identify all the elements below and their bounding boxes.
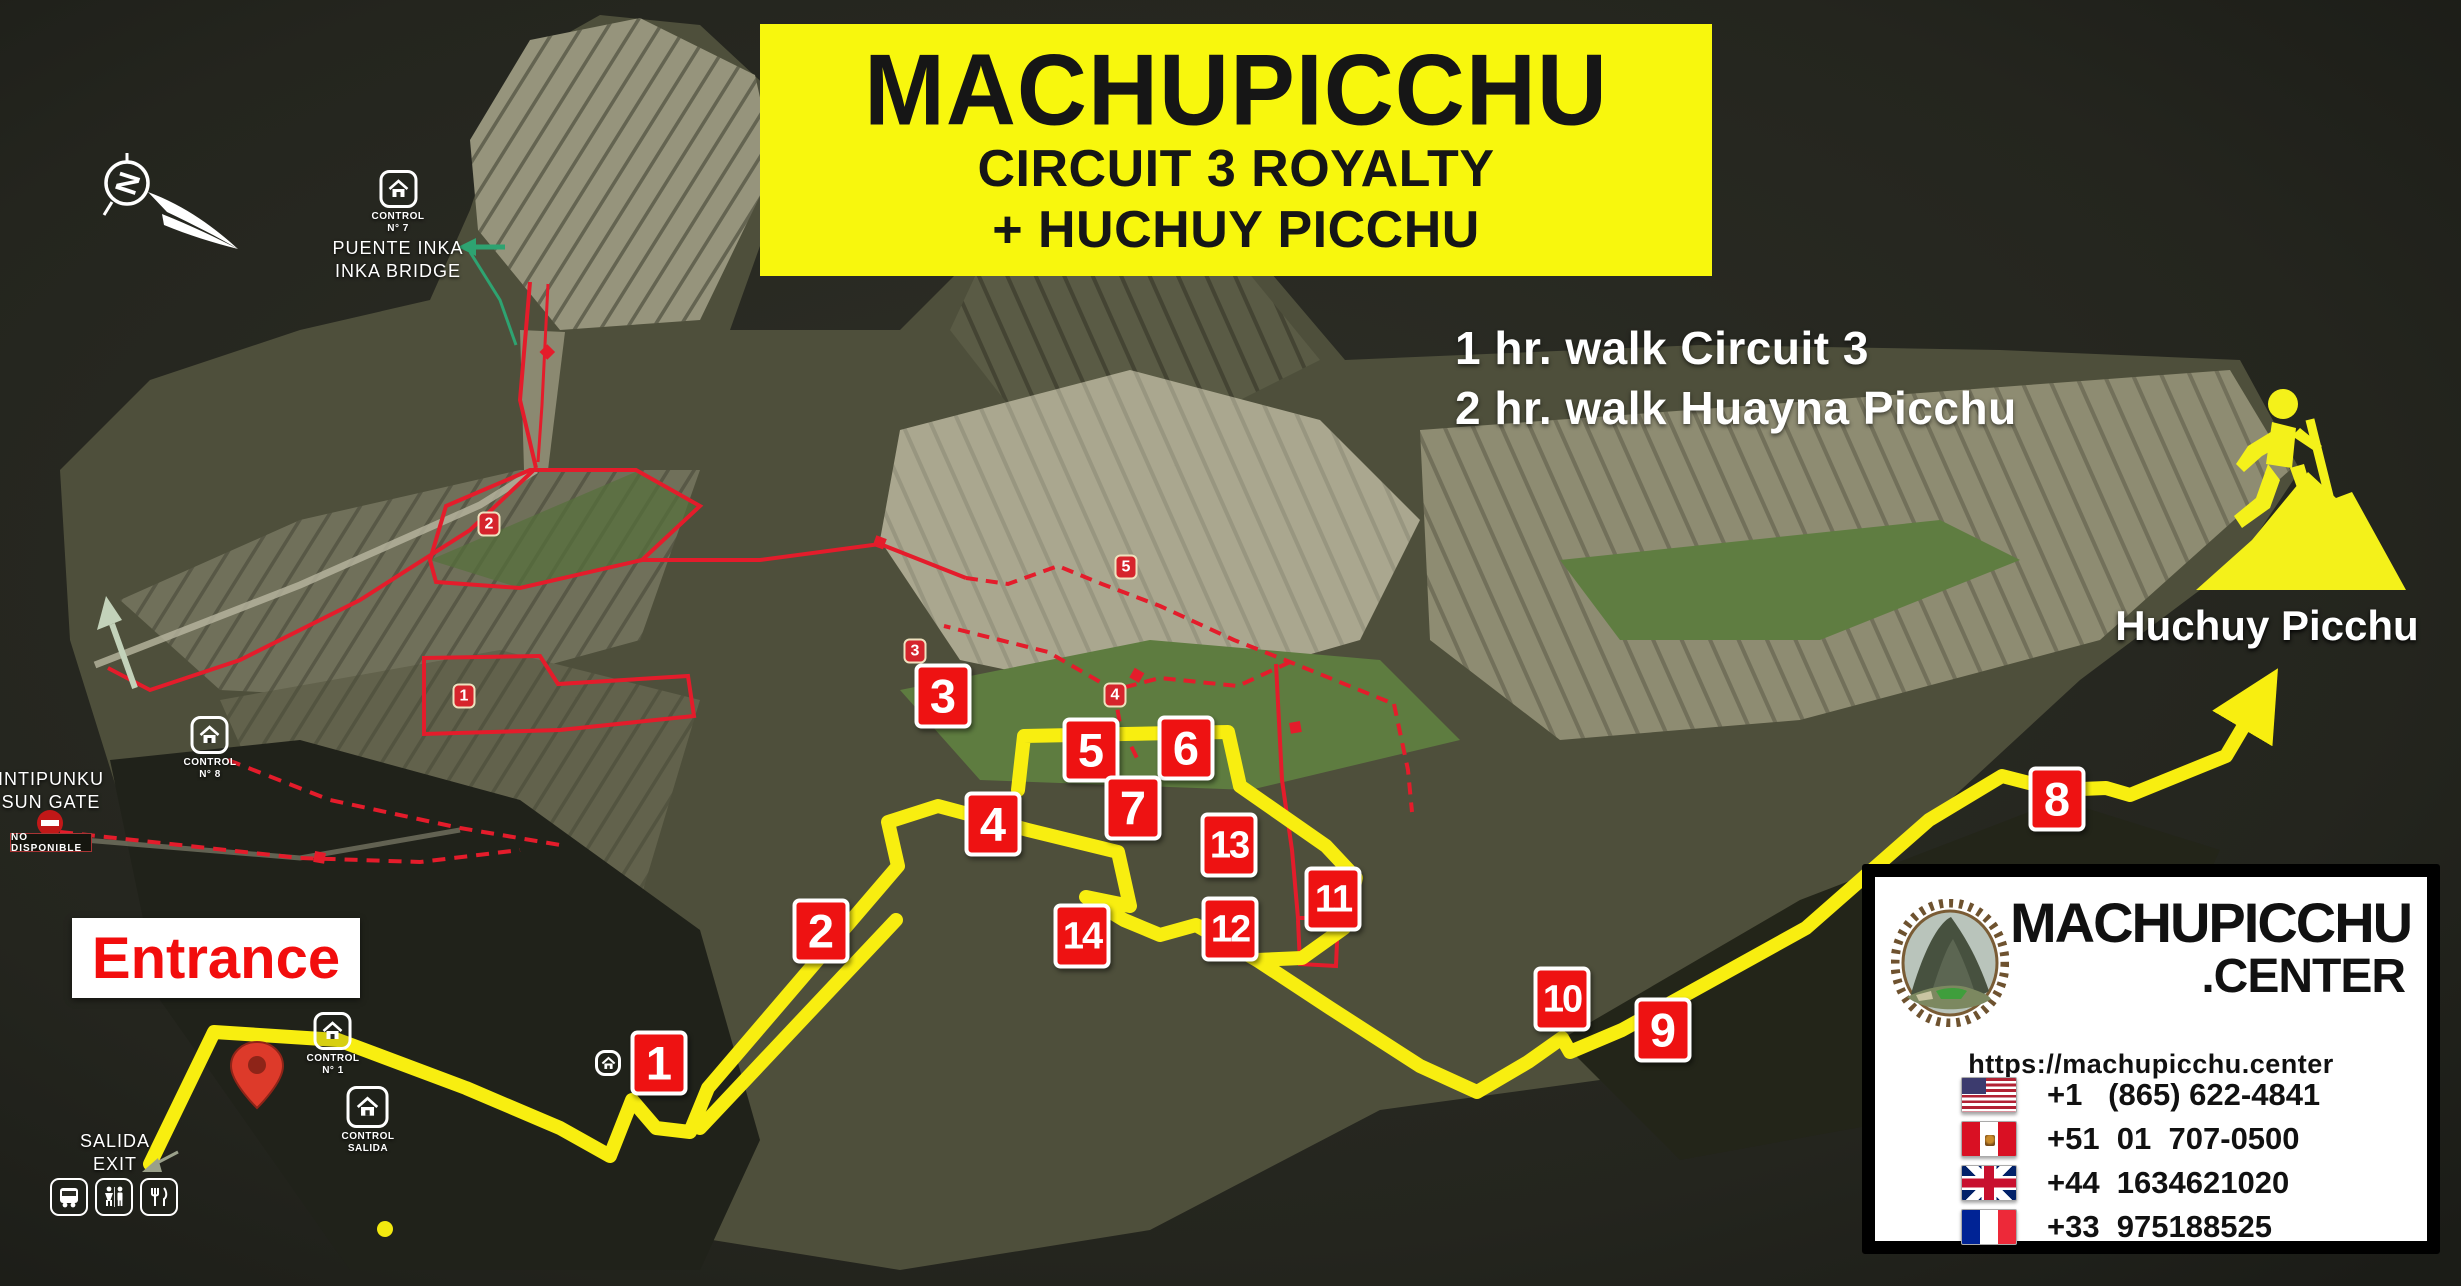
walk-duration-circuit3: 1 hr. walk Circuit 3 xyxy=(1455,318,2017,378)
entrance-label-box: Entrance xyxy=(72,918,360,998)
control-salida: CONTROL SALIDA xyxy=(342,1086,395,1154)
machu-picchu-circuit-map: N MACHUPICCHU CIRCUIT 3 ROYALTY + HUCHUY… xyxy=(0,0,2461,1286)
waypoint-4: 4 xyxy=(965,792,1022,857)
house-icon xyxy=(379,170,417,208)
green-arrows xyxy=(97,238,516,688)
phone-row-usa: +1 (865) 622-4841 xyxy=(1961,1073,2320,1117)
huchuy-picchu-label: Huchuy Picchu xyxy=(2115,602,2418,650)
phone-row-uk: +44 1634621020 xyxy=(1961,1161,2320,1205)
phone-number-usa: +1 (865) 622-4841 xyxy=(2047,1077,2320,1113)
map-subtitle-huchuy: + HUCHUY PICCHU xyxy=(760,201,1712,259)
walk-duration-huayna: 2 hr. walk Huayna Picchu xyxy=(1455,378,2017,438)
intipunku-line1: INTIPUNKU xyxy=(0,768,104,791)
waypoint-11: 11 xyxy=(1305,867,1362,932)
waypoint-1: 1 xyxy=(631,1031,688,1096)
waypoint-5: 5 xyxy=(1063,718,1120,783)
control-number: N° 8 xyxy=(199,769,221,781)
exit-line: EXIT xyxy=(80,1153,150,1176)
control-1: CONTROL N° 1 xyxy=(307,1012,360,1076)
france-flag-icon xyxy=(1961,1209,2017,1245)
control-number: SALIDA xyxy=(348,1143,388,1155)
waypoint-12: 12 xyxy=(1202,897,1259,962)
phone-number-france: +33 975188525 xyxy=(2047,1209,2272,1245)
waypoint-3: 3 xyxy=(915,664,972,729)
salida-line: SALIDA xyxy=(80,1130,150,1153)
circuit-marker-5: 5 xyxy=(1115,555,1138,580)
usa-flag-icon xyxy=(1961,1077,2017,1113)
waypoint-10: 10 xyxy=(1534,967,1591,1032)
waypoint-2: 2 xyxy=(793,899,850,964)
restaurant-icon xyxy=(140,1178,178,1216)
house-icon xyxy=(314,1012,352,1050)
control-7-puente-inka: CONTROL N° 7 PUENTE INKA INKA BRIDGE xyxy=(332,170,463,282)
map-title: MACHUPICCHU xyxy=(760,39,1712,140)
yellow-dot-marker xyxy=(377,1221,393,1237)
map-subtitle-circuit: CIRCUIT 3 ROYALTY xyxy=(760,140,1712,198)
machupicchu-center-info-box: MACHUPICCHU .CENTER https://machupicchu.… xyxy=(1862,864,2440,1254)
info-header: MACHUPICCHU .CENTER xyxy=(1875,891,2427,1041)
house-icon xyxy=(595,1050,621,1076)
control-label: CONTROL xyxy=(307,1053,360,1065)
compass-icon: N xyxy=(104,153,238,249)
salida-exit-label: SALIDA EXIT xyxy=(80,1130,150,1175)
bus-icon xyxy=(50,1178,88,1216)
no-disponible-badge: NO DISPONIBLE xyxy=(10,833,92,852)
circuit-marker-2: 2 xyxy=(478,512,501,537)
phone-number-peru: +51 01 707-0500 xyxy=(2047,1121,2300,1157)
brand-wordmark: MACHUPICCHU .CENTER xyxy=(2010,895,2405,1001)
phone-number-uk: +44 1634621020 xyxy=(2047,1165,2289,1201)
waypoint-14: 14 xyxy=(1054,904,1111,969)
phone-row-peru: +51 01 707-0500 xyxy=(1961,1117,2320,1161)
control-label: CONTROL xyxy=(342,1131,395,1143)
control-label: CONTROL xyxy=(184,757,237,769)
inka-bridge-name: INKA BRIDGE xyxy=(335,260,461,283)
brand-line2: .CENTER xyxy=(2010,953,2405,1001)
waypoint-13: 13 xyxy=(1201,813,1258,878)
compass-north-letter: N xyxy=(109,168,147,199)
circuit-marker-4: 4 xyxy=(1104,683,1127,708)
entrance-pin-icon xyxy=(231,1042,283,1108)
control-number: N° 7 xyxy=(387,223,409,235)
entrance-label: Entrance xyxy=(92,925,340,992)
walk-duration-info: 1 hr. walk Circuit 3 2 hr. walk Huayna P… xyxy=(1455,318,2017,438)
puente-inka-name: PUENTE INKA xyxy=(332,237,463,260)
peru-flag-icon xyxy=(1961,1121,2017,1157)
hiker-mountain-icon xyxy=(2196,389,2406,590)
control-label: CONTROL xyxy=(372,211,425,223)
map-title-box: MACHUPICCHU CIRCUIT 3 ROYALTY + HUCHUY P… xyxy=(760,24,1712,276)
phone-list: +1 (865) 622-4841 +51 01 707-0500 +44 16… xyxy=(1961,1073,2320,1249)
control-8-intipunku: CONTROL N° 8 xyxy=(184,716,237,780)
waypoint-6: 6 xyxy=(1158,716,1215,781)
control-number: N° 1 xyxy=(322,1065,344,1077)
circuit-marker-3: 3 xyxy=(904,639,927,664)
waypoint-8: 8 xyxy=(2029,767,2086,832)
house-icon xyxy=(347,1086,389,1128)
waypoint-9: 9 xyxy=(1635,998,1692,1063)
brand-line1: MACHUPICCHU xyxy=(2010,895,2405,951)
circuit-marker-1: 1 xyxy=(453,684,476,709)
machupicchu-center-logo xyxy=(1891,899,2009,1032)
waypoint-7: 7 xyxy=(1105,776,1162,841)
restroom-icon xyxy=(95,1178,133,1216)
facilities-row xyxy=(50,1178,178,1216)
house-icon xyxy=(191,716,229,754)
uk-flag-icon xyxy=(1961,1165,2017,1201)
phone-row-france: +33 975188525 xyxy=(1961,1205,2320,1249)
control-house-small xyxy=(595,1050,621,1076)
